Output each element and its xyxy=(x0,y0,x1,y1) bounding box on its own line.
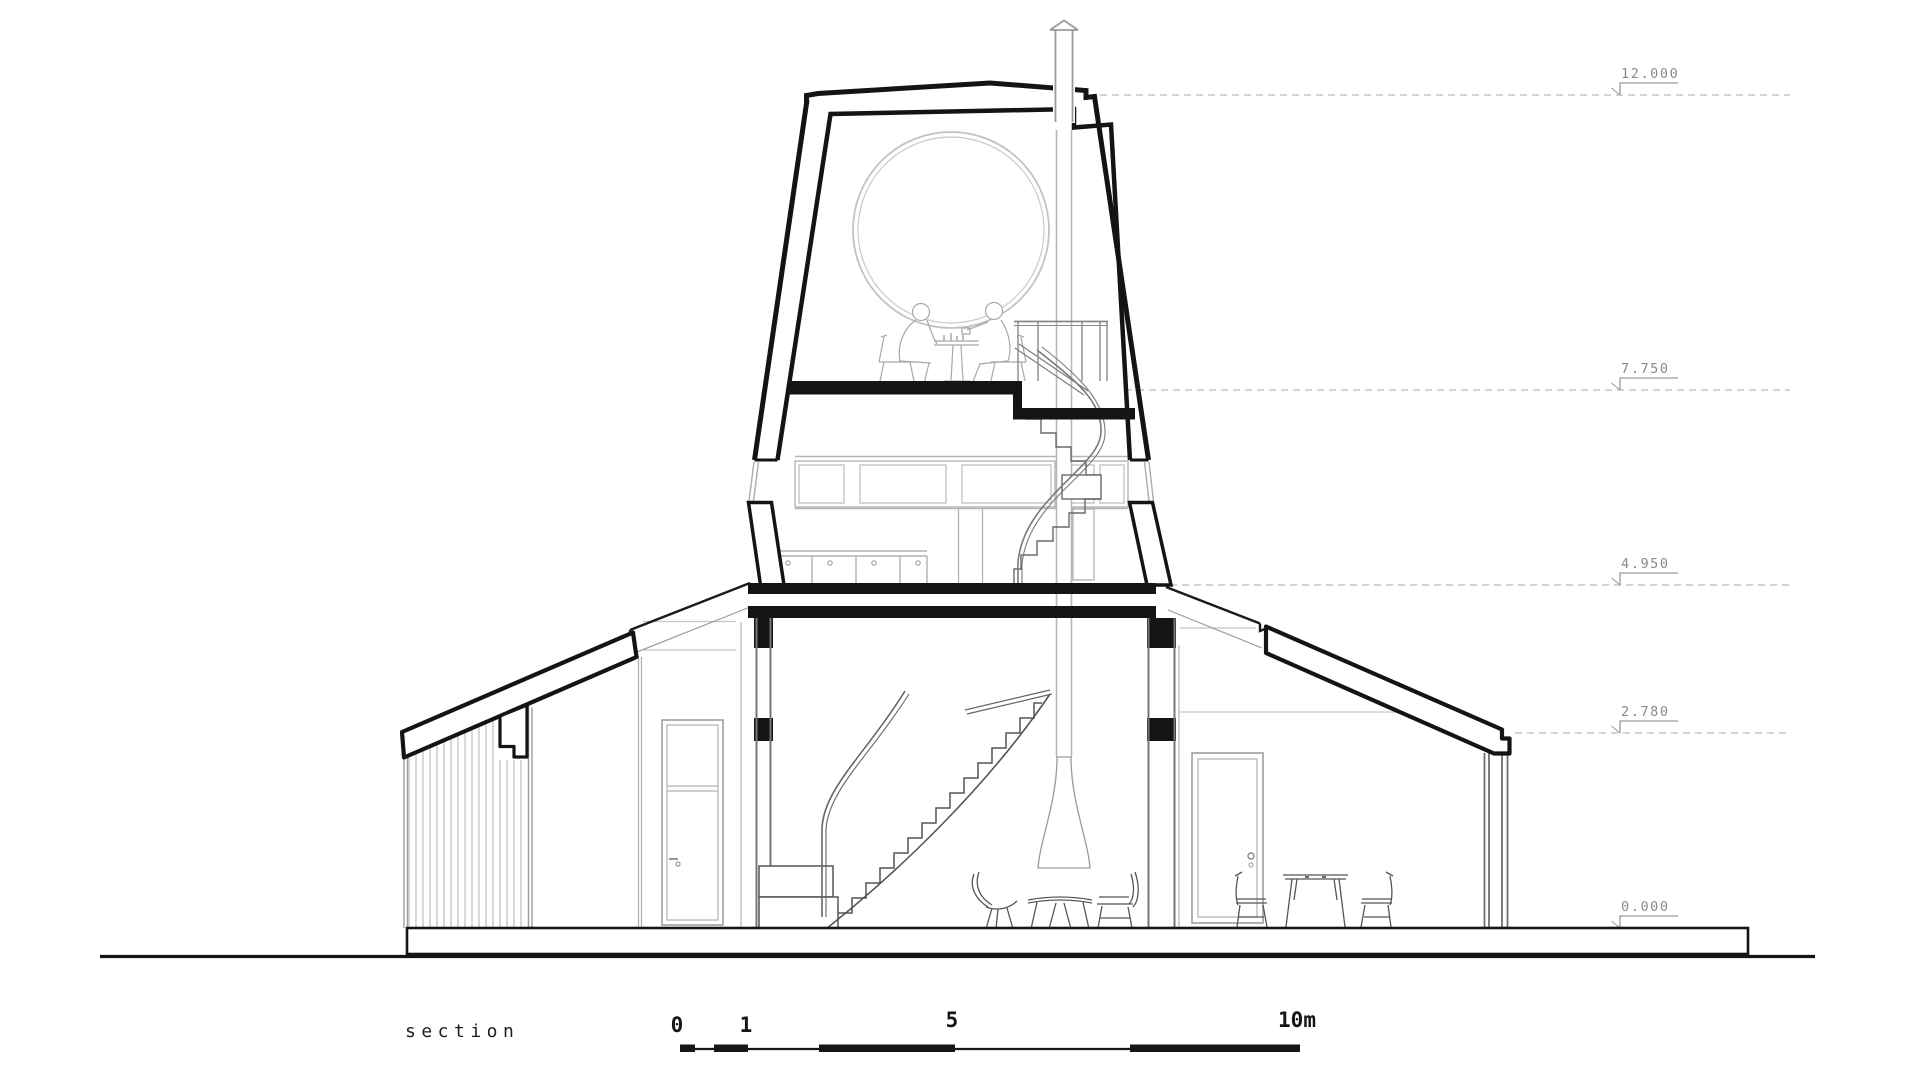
drawing-title: section xyxy=(405,1021,519,1042)
mid-floor-slab-bottom xyxy=(748,606,1156,618)
elevation-markers xyxy=(1612,83,1679,928)
right-roof-cut xyxy=(1266,627,1510,754)
elevation-marker-4950 xyxy=(1612,573,1679,585)
landing-slab xyxy=(1022,408,1135,420)
cabinet-knob-icon xyxy=(828,561,832,565)
right-upper-roof-edge xyxy=(1166,587,1266,631)
elevation-marker-0000 xyxy=(1612,916,1679,928)
scale-label-5: 5 xyxy=(946,1008,959,1032)
left-wing-door xyxy=(662,720,723,925)
fireplace-cone xyxy=(1038,757,1090,868)
chair-left-top xyxy=(879,335,914,381)
chess-pieces-icon xyxy=(944,333,963,341)
ground-floor-stair xyxy=(759,694,1050,929)
elevation-marker-7750 xyxy=(1612,378,1679,390)
round-window-inner xyxy=(858,137,1044,323)
tower-interior xyxy=(770,132,1128,583)
right-wing-elevation xyxy=(1166,587,1508,928)
closet-partition-lines xyxy=(959,509,983,583)
dining-chair-right xyxy=(1361,872,1393,927)
far-eaves-lines-left xyxy=(643,622,736,651)
stair-pole xyxy=(1056,130,1072,757)
top-floor-slab xyxy=(789,381,1017,395)
elevation-marker-labels: 12.000 7.750 4.950 2.780 0.000 xyxy=(1621,66,1679,915)
person-right xyxy=(959,303,1010,386)
elevation-marker-12000 xyxy=(1612,83,1679,95)
kitchen-counter xyxy=(770,551,927,583)
floor-plinth xyxy=(407,928,1748,954)
left-upper-roof-edge xyxy=(630,583,750,655)
dining-table xyxy=(1283,875,1348,927)
tower-wall-left-lower xyxy=(749,503,785,586)
cabinet-knob-icon xyxy=(916,561,920,565)
armchair xyxy=(1097,872,1138,928)
right-upper-roof-underside xyxy=(1168,610,1262,648)
lounge-chair xyxy=(972,872,1017,929)
right-wall-stub xyxy=(1147,618,1176,648)
left-wall-window xyxy=(749,462,759,501)
left-interior-wall-line xyxy=(639,656,642,928)
elevation-label-2780: 2.780 xyxy=(1621,704,1670,720)
scale-bar: 0 1 5 10m xyxy=(671,1008,1316,1052)
section-drawing: 12.000 7.750 4.950 2.780 0.000 xyxy=(0,0,1920,1091)
coffee-table xyxy=(1028,897,1092,929)
siding-battens xyxy=(409,721,521,928)
tower-cut-walls xyxy=(755,83,1149,460)
right-eaves-posts xyxy=(1485,753,1508,928)
lounge-furniture xyxy=(972,872,1138,929)
game-table xyxy=(934,333,979,381)
right-beam-block xyxy=(1147,718,1176,741)
elevation-label-12000: 12.000 xyxy=(1621,66,1679,82)
tower-wall-right-lower xyxy=(1130,503,1172,586)
mid-floor-slab-top xyxy=(748,583,1156,594)
elevation-label-7750: 7.750 xyxy=(1621,361,1670,377)
scale-label-0: 0 xyxy=(671,1013,684,1037)
ground-stair-handrail xyxy=(822,690,1052,917)
elevation-marker-2780 xyxy=(1612,721,1679,733)
left-wing-elevation xyxy=(404,583,750,928)
mid-level-door xyxy=(1073,509,1094,580)
right-wall-window xyxy=(1145,462,1154,501)
round-window xyxy=(853,132,1049,328)
section-drawing-page: 12.000 7.750 4.950 2.780 0.000 xyxy=(0,0,1920,1091)
right-wing-door xyxy=(1192,753,1263,923)
cabinet-knob-icon xyxy=(872,561,876,565)
left-upper-roof-underside xyxy=(632,607,750,654)
slab-step xyxy=(1013,381,1022,420)
elevation-label-0000: 0.000 xyxy=(1621,899,1670,915)
elevation-label-4950: 4.950 xyxy=(1621,556,1670,572)
cabinet-knob-icon xyxy=(786,561,790,565)
roof-mast xyxy=(1050,17,1078,123)
scale-label-1: 1 xyxy=(740,1013,753,1037)
left-roof-beam-tab xyxy=(500,705,527,757)
level-dashed-lines xyxy=(1100,95,1790,733)
scale-label-10m: 10m xyxy=(1278,1008,1316,1032)
